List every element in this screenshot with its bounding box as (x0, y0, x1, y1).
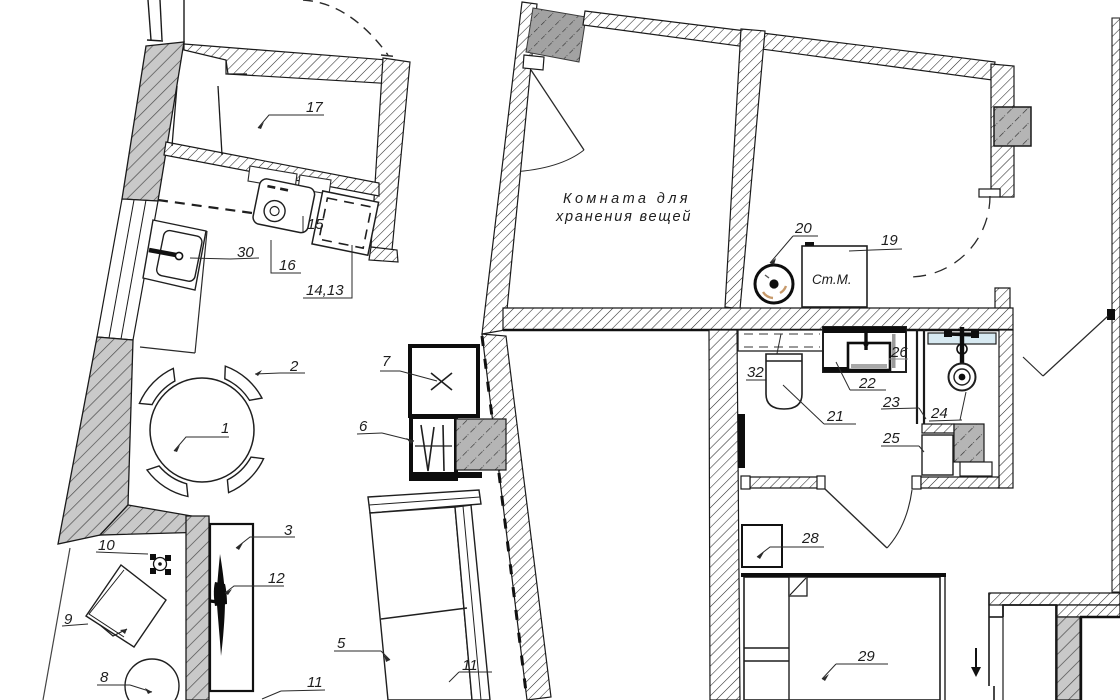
svg-text:17: 17 (306, 99, 323, 116)
svg-text:10: 10 (98, 537, 115, 554)
svg-text:8: 8 (100, 669, 109, 686)
svg-text:16: 16 (279, 257, 296, 274)
svg-text:19: 19 (881, 232, 898, 249)
svg-text:15: 15 (307, 216, 324, 233)
svg-text:6: 6 (359, 418, 368, 435)
svg-text:26: 26 (890, 344, 908, 361)
svg-text:29: 29 (857, 648, 875, 665)
svg-text:Ст.М.: Ст.М. (812, 272, 852, 287)
svg-text:24: 24 (930, 405, 948, 422)
svg-text:1: 1 (221, 420, 229, 437)
svg-text:2: 2 (289, 358, 299, 375)
svg-text:14,13: 14,13 (306, 282, 344, 299)
svg-text:хранения вещей: хранения вещей (555, 209, 692, 225)
svg-text:22: 22 (858, 375, 876, 392)
svg-text:5: 5 (337, 635, 346, 652)
svg-text:28: 28 (801, 530, 819, 547)
svg-text:32: 32 (747, 364, 764, 381)
svg-text:7: 7 (382, 353, 391, 370)
svg-text:11: 11 (462, 657, 478, 674)
svg-text:21: 21 (826, 408, 844, 425)
svg-text:20: 20 (794, 220, 812, 237)
svg-text:25: 25 (882, 430, 900, 447)
svg-text:Комната для: Комната для (563, 191, 691, 207)
svg-text:11: 11 (307, 674, 323, 691)
svg-text:3: 3 (284, 522, 293, 539)
svg-text:12: 12 (268, 570, 285, 587)
